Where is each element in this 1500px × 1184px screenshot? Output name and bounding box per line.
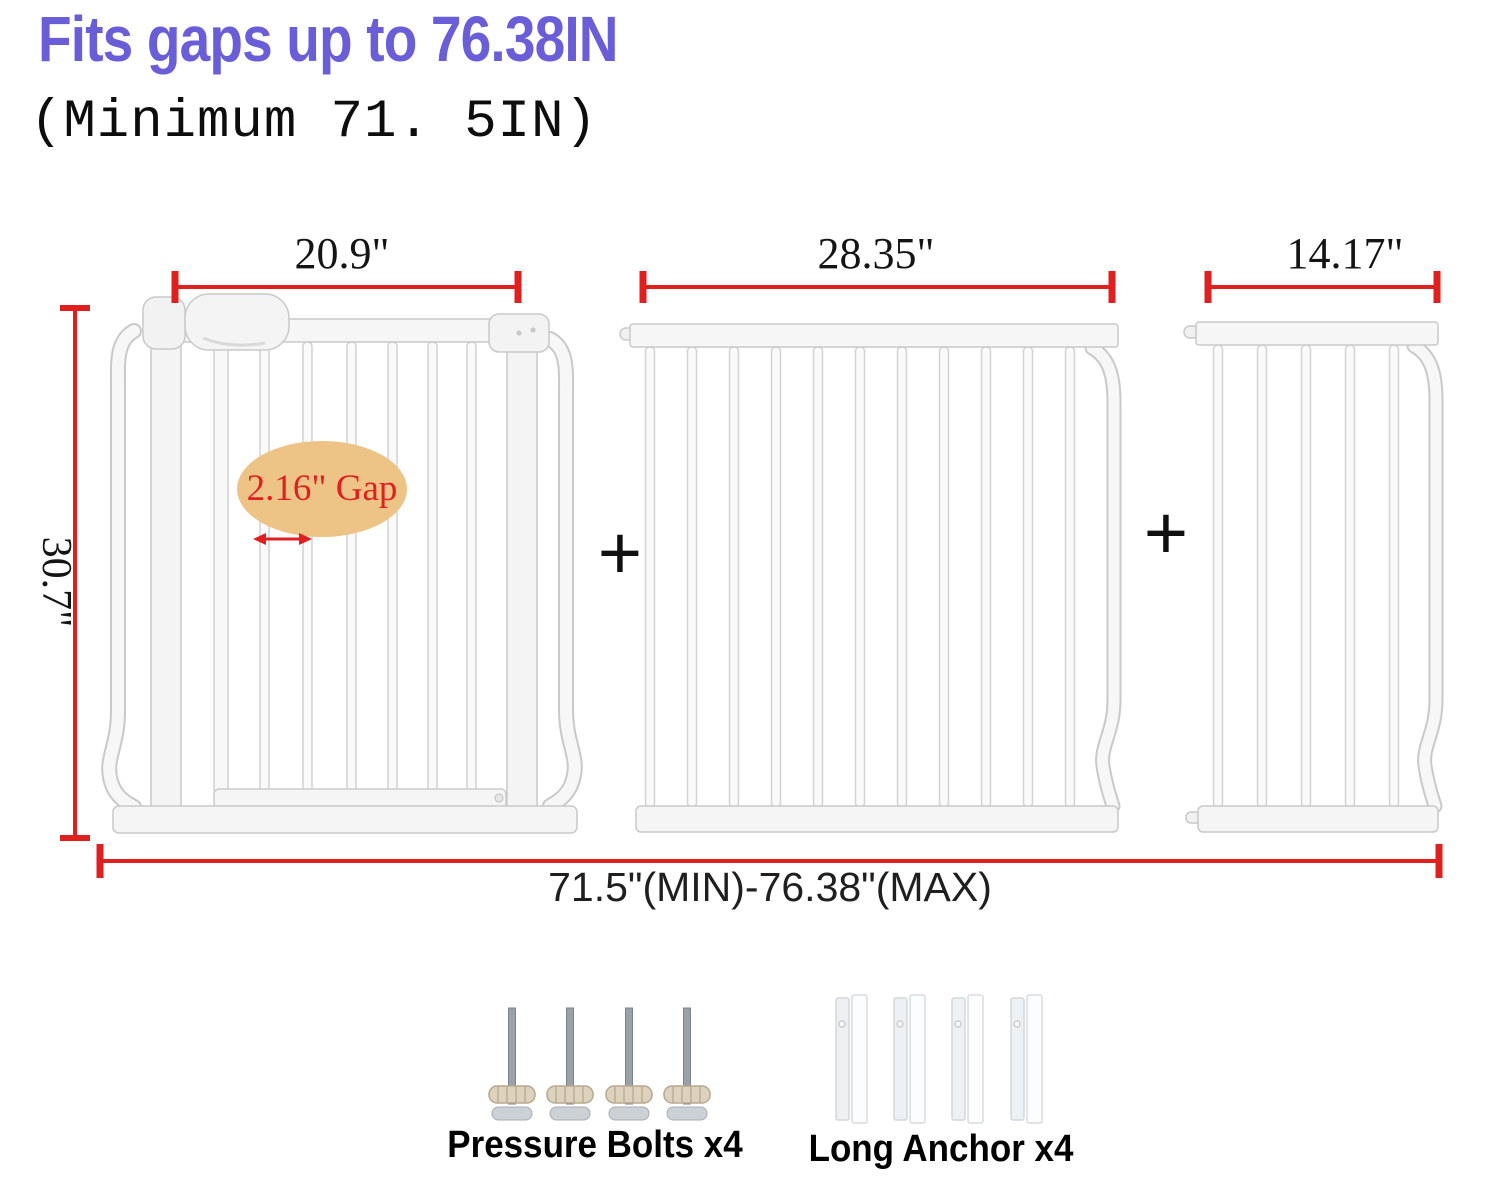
long-anchor <box>836 995 867 1123</box>
bar-gap-label: 2.16" Gap <box>247 467 398 510</box>
extension-large-width-label: 28.35" <box>818 228 935 279</box>
pressure-bolt <box>547 1008 593 1120</box>
extension-large-end-tube <box>1092 348 1114 806</box>
door-frame-bottom-rail <box>113 806 577 833</box>
door-latch-pin <box>495 794 503 802</box>
long-anchor-label: Long Anchor x4 <box>809 1128 1074 1171</box>
extension-small-bars <box>1214 345 1399 807</box>
extension-small-end-tube <box>1414 346 1436 806</box>
pressure-bolts-label: Pressure Bolts x4 <box>447 1124 742 1167</box>
pressure-bolt <box>489 1008 535 1120</box>
door-left-tube <box>109 331 134 807</box>
page-subtitle: (Minimum 71. 5IN) <box>30 92 598 153</box>
extension-large-top-rail <box>630 324 1118 347</box>
latch-hole-2 <box>530 327 535 332</box>
long-anchor <box>952 995 983 1123</box>
total-width-range-label: 71.5"(MIN)-76.38"(MAX) <box>548 864 992 911</box>
page-title: Fits gaps up to 76.38IN <box>38 2 618 76</box>
door-bars <box>260 342 476 792</box>
pressure-bolt <box>606 1008 652 1120</box>
door-panel-graphic <box>109 294 577 833</box>
door-left-post <box>151 305 181 815</box>
extension-large-bars <box>646 347 1075 807</box>
hinge-cap <box>143 297 185 349</box>
long-anchors-graphic <box>836 995 1042 1123</box>
extension-large-graphic <box>620 324 1118 832</box>
door-width-label: 20.9" <box>295 228 390 279</box>
diagram-artwork <box>0 0 1500 1184</box>
extension-large-bottom-rail <box>636 806 1118 832</box>
latch-hole-1 <box>516 330 521 335</box>
product-dimension-diagram: Fits gaps up to 76.38IN (Minimum 71. 5IN… <box>0 0 1500 1184</box>
door-stile <box>214 342 228 794</box>
extension-small-graphic <box>1184 322 1438 832</box>
plus-sign-1: + <box>598 510 642 597</box>
gate-handle <box>185 294 289 350</box>
plus-sign-2: + <box>1144 490 1188 577</box>
pressure-bolt <box>664 1008 710 1120</box>
long-anchor <box>1011 995 1042 1123</box>
extension-small-width-label: 14.17" <box>1287 228 1404 279</box>
gate-height-label: 30.7" <box>32 512 80 652</box>
extension-small-top-rail <box>1196 322 1438 345</box>
door-bottom-rail <box>214 789 506 808</box>
door-right-post <box>507 320 537 815</box>
long-anchor <box>894 995 925 1123</box>
pressure-bolts-graphic <box>489 1008 710 1120</box>
extension-small-bottom-rail <box>1198 806 1438 832</box>
